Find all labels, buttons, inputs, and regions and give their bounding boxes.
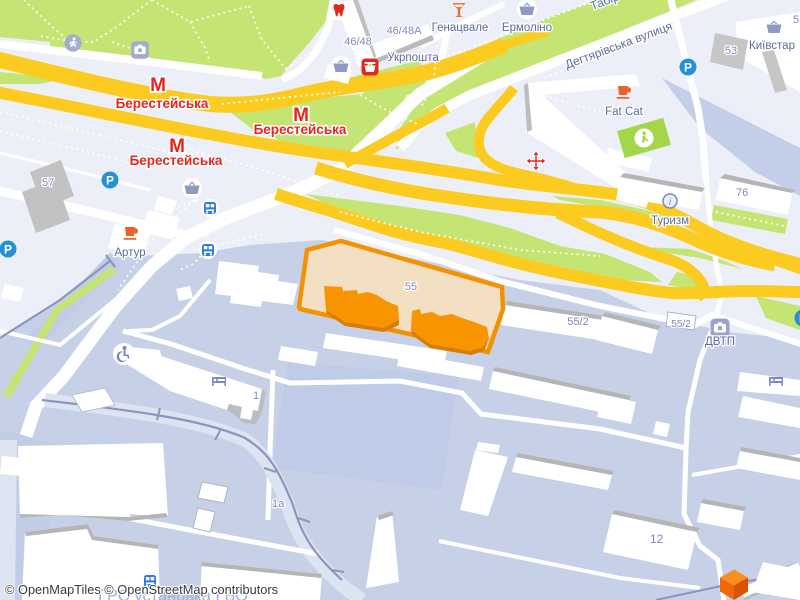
svg-text:ДВТП: ДВТП — [705, 336, 735, 348]
svg-text:Укрпошта: Укрпошта — [387, 52, 439, 64]
svg-text:P: P — [106, 174, 114, 188]
svg-text:P: P — [4, 243, 12, 257]
svg-text:53: 53 — [725, 45, 737, 57]
svg-text:46/48А: 46/48А — [387, 25, 423, 37]
svg-text:Генацвале: Генацвале — [432, 22, 489, 34]
svg-text:55/2: 55/2 — [567, 316, 588, 328]
svg-text:Туризм: Туризм — [651, 215, 689, 227]
svg-text:Артур: Артур — [114, 247, 145, 259]
svg-text:Берестейська: Берестейська — [116, 96, 209, 111]
svg-text:1: 1 — [253, 390, 259, 402]
svg-text:Берестейська: Берестейська — [130, 153, 223, 168]
svg-text:© OpenMapTiles © OpenStreetMap: © OpenMapTiles © OpenStreetMap contribut… — [5, 582, 278, 597]
svg-text:76: 76 — [736, 187, 748, 199]
svg-text:55: 55 — [405, 281, 417, 293]
svg-text:5: 5 — [793, 14, 799, 26]
svg-text:Київстар: Київстар — [749, 40, 795, 52]
svg-text:М: М — [150, 75, 166, 96]
svg-text:Ермоліно: Ермоліно — [502, 22, 552, 34]
svg-text:Fat Cat: Fat Cat — [605, 106, 644, 118]
svg-text:57: 57 — [42, 177, 54, 189]
svg-text:12: 12 — [650, 532, 664, 546]
svg-text:46/48: 46/48 — [344, 36, 372, 48]
svg-text:P: P — [684, 61, 692, 75]
svg-text:55/2: 55/2 — [671, 319, 691, 330]
svg-text:Берестейська: Берестейська — [254, 122, 347, 137]
svg-text:1a: 1a — [272, 498, 285, 510]
